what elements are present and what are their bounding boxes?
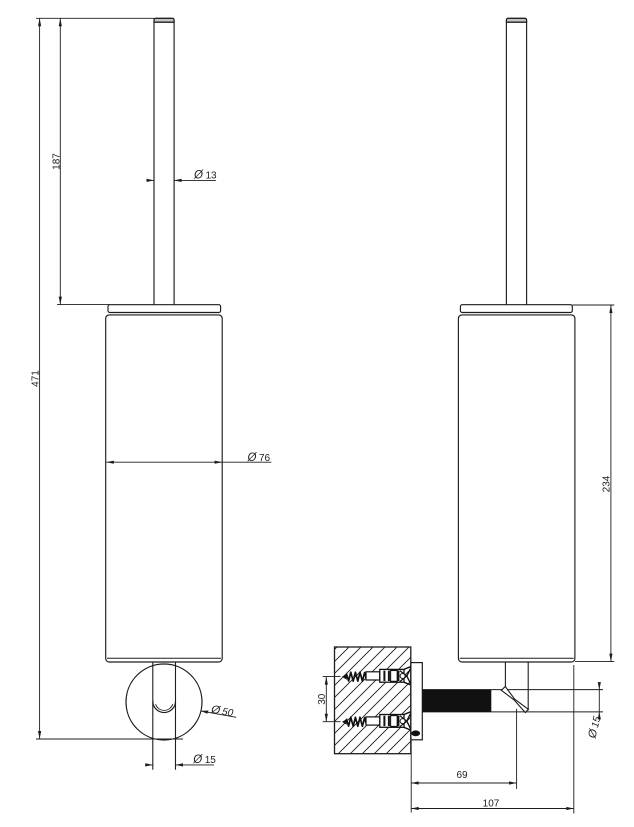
svg-text:30: 30 (317, 693, 328, 705)
svg-text:471: 471 (31, 370, 42, 387)
svg-text:Ø76: Ø76 (247, 452, 271, 464)
svg-text:69: 69 (456, 770, 468, 781)
svg-text:Ø15: Ø15 (192, 754, 216, 766)
svg-text:187: 187 (51, 153, 62, 170)
svg-text:234: 234 (602, 475, 613, 492)
svg-text:Ø13: Ø13 (193, 169, 217, 181)
svg-text:107: 107 (483, 798, 500, 809)
